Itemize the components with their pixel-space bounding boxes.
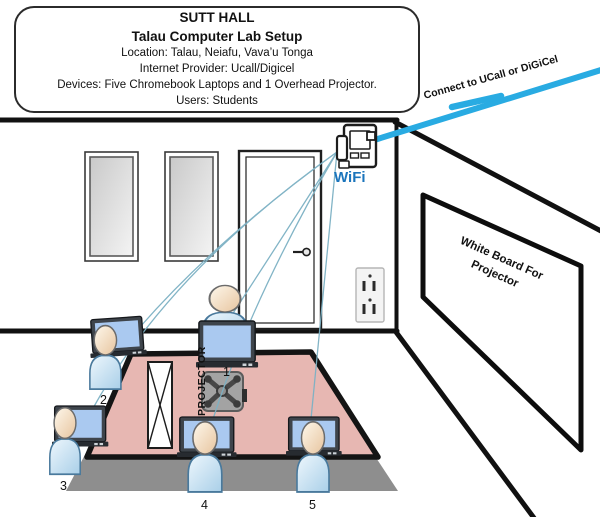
window-left — [85, 152, 138, 261]
hall-name: SUTT HALL — [180, 9, 255, 28]
station-number-3: 3 — [60, 479, 67, 493]
divider-panel — [148, 362, 172, 448]
station-number-4: 4 — [201, 498, 208, 512]
provider-line: Internet Provider: Ucall/Digicel — [140, 62, 295, 78]
station-number-1: 1 — [223, 365, 230, 379]
lab-setup-diagram: SUTT HALL Talau Computer Lab Setup Locat… — [0, 0, 600, 517]
devices-line: Devices: Five Chromebook Laptops and 1 O… — [57, 78, 377, 94]
wifi-label: WiFi — [334, 169, 366, 186]
projector-label: PROJECTOR — [196, 356, 208, 416]
diagram-title: Talau Computer Lab Setup — [132, 28, 303, 47]
window-right — [165, 152, 218, 261]
title-box: SUTT HALL Talau Computer Lab Setup Locat… — [14, 6, 420, 113]
station-number-2: 2 — [100, 393, 107, 407]
wifi-router-icon — [337, 125, 376, 168]
location-line: Location: Talau, Neiafu, Vava’u Tonga — [121, 46, 313, 62]
station-number-5: 5 — [309, 498, 316, 512]
door-knob-icon — [303, 248, 310, 255]
power-outlet-icon — [356, 268, 384, 322]
users-line: Users: Students — [176, 94, 258, 110]
